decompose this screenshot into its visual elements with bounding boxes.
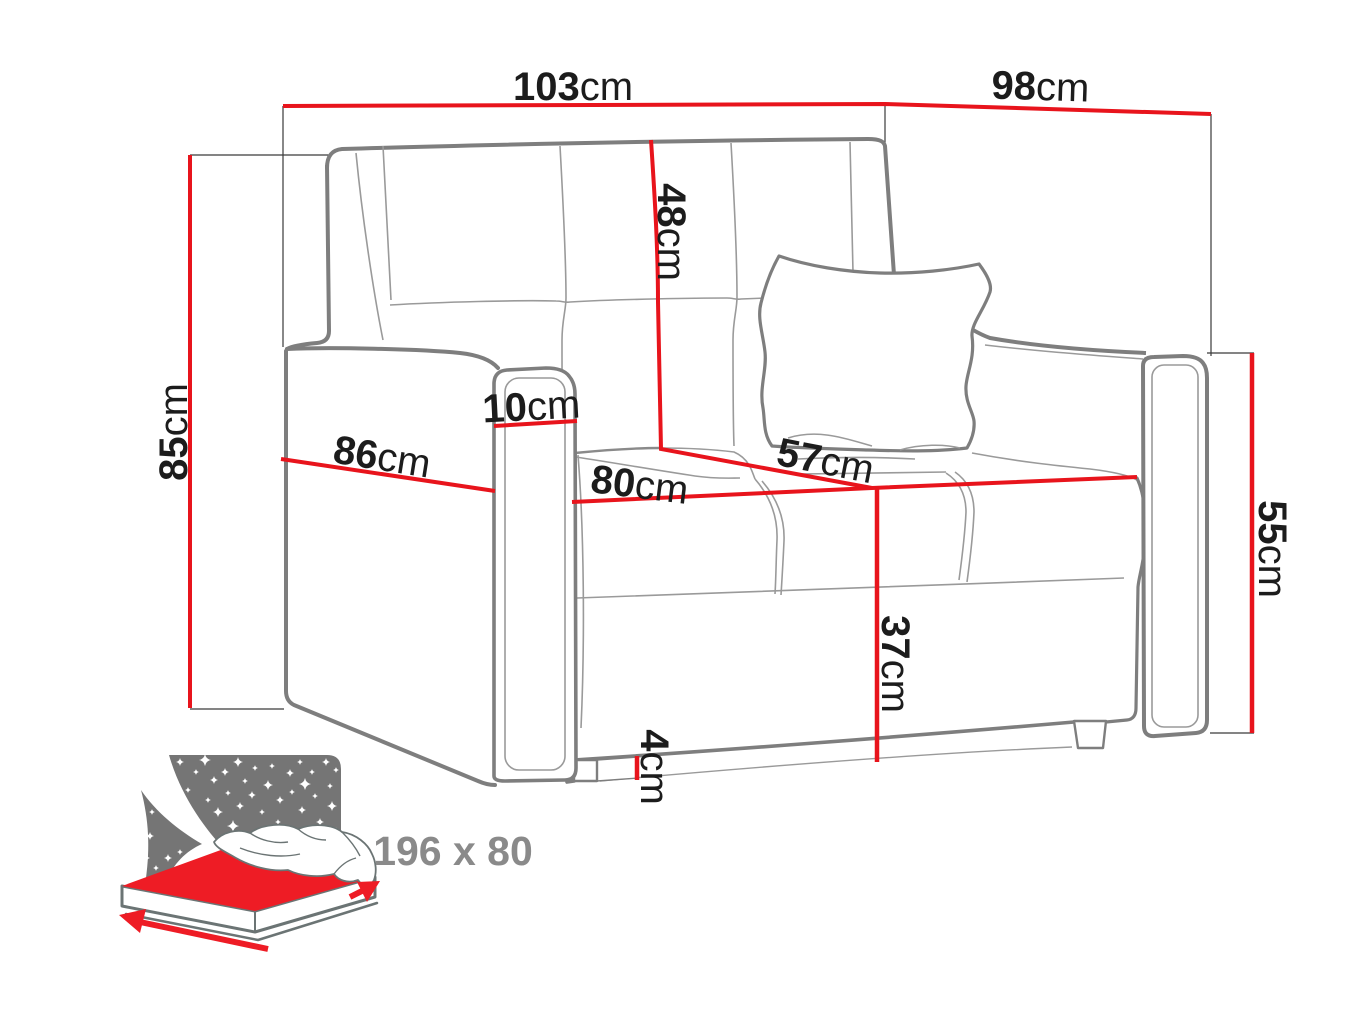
svg-text:48cm: 48cm [649,183,693,281]
svg-text:10cm: 10cm [481,382,581,431]
svg-text:4cm: 4cm [632,729,676,805]
svg-text:37cm: 37cm [873,615,917,713]
svg-text:196 x 80: 196 x 80 [373,828,533,874]
svg-text:103cm: 103cm [513,65,633,109]
svg-text:55cm: 55cm [1250,500,1294,598]
svg-text:98cm: 98cm [991,63,1090,110]
svg-text:85cm: 85cm [152,383,196,481]
